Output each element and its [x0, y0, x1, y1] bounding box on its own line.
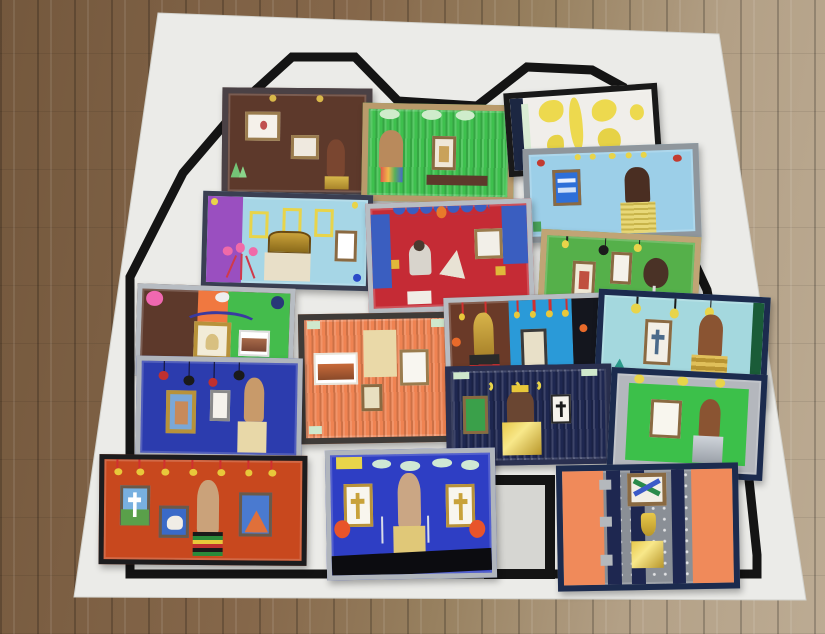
picture [205, 333, 219, 350]
statue [327, 139, 345, 176]
pompom [561, 240, 569, 248]
purple-blue-hall-interior [206, 196, 368, 286]
pompom [436, 206, 447, 218]
pin [589, 153, 596, 159]
blob [591, 99, 618, 122]
pedestal [193, 532, 223, 556]
tape [600, 480, 612, 490]
label [503, 422, 543, 455]
pompom [334, 520, 350, 538]
patch [391, 260, 399, 269]
diorama-blue-gallery [135, 356, 303, 461]
diorama-sky-saint [522, 143, 701, 243]
pin [217, 469, 225, 476]
frame [649, 400, 683, 439]
picture [558, 188, 576, 193]
pompom [634, 374, 645, 384]
patch [511, 385, 528, 392]
tape [307, 321, 320, 329]
pompom [634, 244, 642, 252]
frame [314, 209, 334, 237]
pin [459, 313, 466, 321]
picture [557, 178, 575, 183]
table [264, 252, 311, 281]
label [363, 329, 396, 377]
pompom [271, 296, 285, 309]
stripe-chalice-interior [562, 469, 734, 586]
pin [317, 95, 324, 102]
pin [269, 470, 277, 477]
patch [336, 457, 362, 469]
pompom [223, 246, 233, 256]
diorama-orange-saints [99, 454, 308, 566]
cloud [432, 458, 451, 468]
grass [239, 166, 247, 178]
pompom [677, 376, 688, 386]
diorama-stripe-chalice [556, 462, 740, 591]
shelf [426, 175, 488, 186]
tape [309, 426, 322, 434]
pompom [248, 247, 258, 257]
pompom [469, 520, 485, 538]
tape [581, 369, 597, 376]
pin [451, 337, 461, 347]
frame [474, 228, 503, 259]
picture [579, 271, 590, 290]
tape [453, 372, 469, 379]
pin [189, 469, 197, 476]
blob [568, 97, 584, 151]
pompom [235, 243, 245, 253]
frame [610, 252, 632, 285]
string [245, 256, 256, 279]
tree [642, 257, 669, 289]
picture-cross [554, 399, 568, 419]
pompom [598, 245, 609, 256]
pedestal [692, 436, 724, 464]
cloud [400, 461, 419, 471]
section [691, 469, 734, 584]
statue [698, 314, 724, 358]
pin [136, 468, 144, 475]
frame [463, 396, 489, 434]
section [206, 196, 243, 283]
cloud [461, 460, 479, 470]
section [562, 471, 605, 586]
picture [175, 402, 188, 424]
pompom [208, 377, 218, 386]
string [188, 361, 190, 376]
patch [533, 222, 542, 232]
pin [575, 154, 582, 160]
pin [579, 324, 587, 333]
statue [507, 390, 534, 426]
red-hall-interior [370, 203, 529, 308]
statue [473, 312, 494, 357]
orange-gallery-interior [304, 318, 454, 439]
pedestal [621, 201, 657, 233]
blob [630, 104, 645, 121]
picture-cross [451, 490, 471, 523]
frame [521, 329, 548, 369]
pompom [669, 308, 679, 318]
green-hall-interior [367, 109, 508, 197]
picture-cross [126, 489, 144, 519]
tape [600, 516, 612, 526]
frame [291, 135, 319, 159]
frame [399, 349, 429, 386]
blob [215, 292, 230, 302]
orange-saints-interior [104, 459, 303, 561]
patch [671, 469, 687, 583]
pin [625, 152, 632, 158]
statue [379, 130, 403, 170]
pompom [184, 375, 195, 385]
pompom [234, 371, 245, 381]
pedestal [380, 167, 403, 182]
pin [245, 469, 253, 476]
picture-cross [648, 327, 667, 357]
label [631, 540, 664, 568]
picture [260, 121, 267, 130]
pompom [159, 371, 169, 380]
frame [209, 389, 230, 421]
chest [267, 230, 311, 254]
diorama-blue-mary [325, 448, 497, 581]
tape [431, 319, 444, 327]
pompom [146, 291, 163, 306]
patch [496, 266, 506, 275]
diorama-brown-hall [222, 87, 373, 198]
section [371, 214, 392, 289]
door-outline-tape [489, 480, 550, 574]
blue-gallery-interior [140, 361, 298, 456]
frame [249, 211, 269, 239]
pin [673, 154, 681, 162]
pedestal [237, 421, 267, 453]
picture [241, 338, 267, 352]
label [408, 291, 432, 305]
craft-photo-scene [0, 0, 825, 634]
picture-cross [348, 490, 368, 523]
brown-hall-interior [228, 93, 367, 192]
statue [698, 398, 722, 439]
diorama-orange-gallery [298, 312, 460, 445]
string [427, 516, 430, 542]
frame [361, 384, 382, 411]
green-mat-interior [613, 373, 762, 474]
statue [197, 480, 219, 534]
tape [601, 555, 613, 565]
statue [397, 473, 420, 529]
blue-mary-interior [330, 453, 492, 576]
sky-saint-interior [529, 149, 696, 237]
string [381, 517, 384, 543]
string [213, 362, 215, 379]
cloud [372, 459, 391, 469]
string [240, 254, 243, 280]
statue [244, 377, 265, 422]
pedestal [324, 177, 349, 190]
patch [331, 548, 492, 575]
pin [114, 468, 122, 475]
patch [439, 248, 470, 279]
pin [162, 469, 170, 476]
pin [537, 159, 545, 167]
diorama-purple-blue-hall [201, 191, 373, 291]
frame [334, 230, 357, 262]
pompom [715, 378, 726, 388]
pin [640, 152, 647, 158]
diorama-green-hall [361, 103, 515, 204]
blob [538, 100, 564, 123]
picture [167, 516, 183, 530]
pin [270, 95, 277, 102]
picture [318, 363, 354, 380]
section [625, 383, 750, 466]
pompom [631, 303, 641, 313]
section [501, 205, 528, 264]
pin [609, 153, 616, 159]
pin [353, 274, 361, 282]
pin [211, 198, 218, 205]
statue [624, 167, 650, 204]
picture [439, 146, 449, 162]
pin [352, 201, 359, 208]
